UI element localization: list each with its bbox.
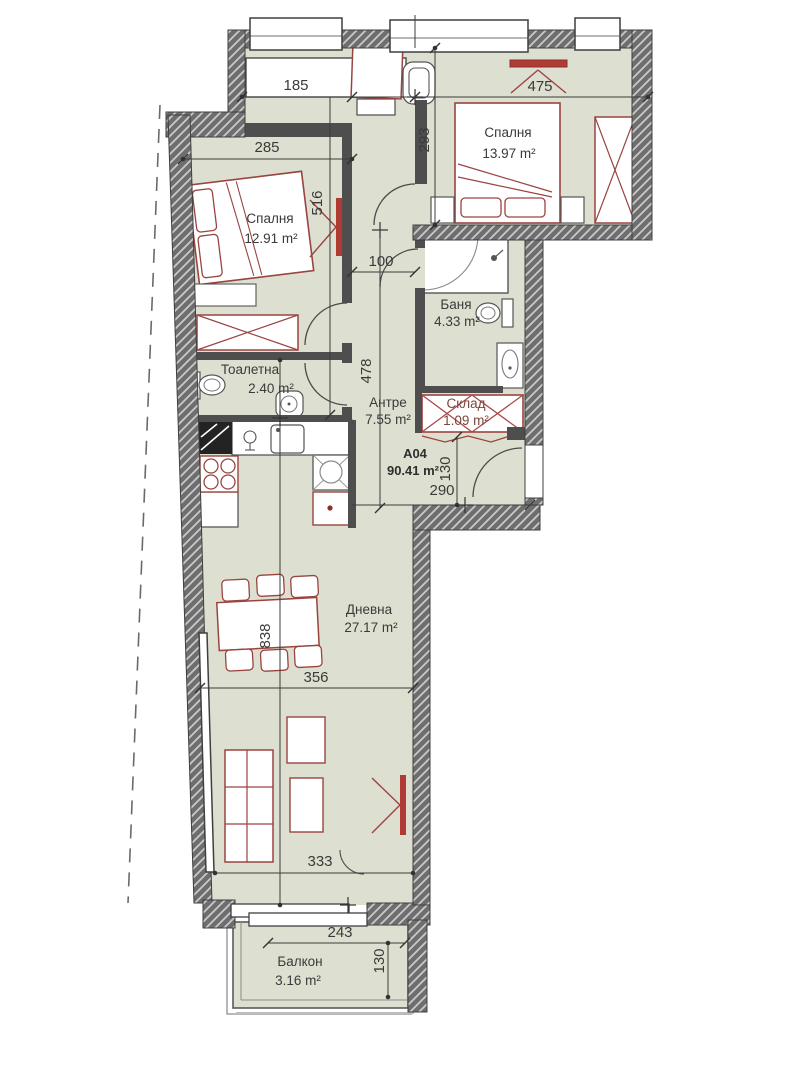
dim-label-130-entry: 130 (437, 456, 454, 481)
balcony-sliding-door (231, 904, 367, 926)
floor-plan-page: 185 475 293 285 516 100 478 130 290 838 … (0, 0, 800, 1078)
dim-label-478: 478 (358, 358, 375, 383)
room-label-bedroom2-area: 13.97 m² (482, 146, 536, 161)
dim-label-185: 185 (283, 77, 308, 94)
bedroom2-nightstand-right (561, 197, 584, 223)
kitchen-stove (200, 456, 238, 492)
unit-code-label: A04 (403, 446, 428, 461)
dining-set (215, 572, 322, 673)
room-label-bedroom1-name: Спалня (246, 211, 293, 226)
kitchen-fridge (198, 422, 232, 454)
dim-label-285: 285 (254, 139, 279, 156)
bedroom2-wardrobe (595, 117, 635, 223)
dim-label-243: 243 (327, 924, 352, 941)
dim-label-293: 293 (416, 127, 433, 152)
bedroom1-bed (187, 171, 313, 284)
bathroom-washbasin (497, 343, 523, 388)
dim-label-100: 100 (368, 253, 393, 270)
coffee-table-2 (290, 778, 323, 832)
room-label-bathroom-area: 4.33 m² (434, 314, 480, 329)
bedroom1-wardrobe (197, 315, 298, 350)
entrance-door-opening (525, 445, 543, 498)
dim-label-356: 356 (303, 669, 328, 686)
room-label-toilet-area: 2.40 m² (248, 381, 294, 396)
room-label-hallway-name: Антре (369, 395, 407, 410)
dim-label-838: 838 (257, 623, 274, 648)
room-label-bedroom2-name: Спалня (484, 125, 531, 140)
room-label-balcony-name: Балкон (277, 954, 322, 969)
bedroom2-bed (455, 103, 560, 223)
sofa (225, 750, 273, 862)
bedroom2-nightstand-left (431, 197, 454, 223)
room-label-balcony-area: 3.16 m² (275, 973, 321, 988)
kitchen-hob-square (313, 492, 350, 525)
unit-area-label: 90.41 m² (387, 463, 440, 478)
room-label-bedroom1-area: 12.91 m² (244, 231, 298, 246)
coffee-table-1 (287, 717, 325, 763)
floor-plan-drawing: 185 475 293 285 516 100 478 130 290 838 … (0, 0, 800, 1078)
room-label-storage-name: Склад (446, 396, 485, 411)
kitchen-sink (271, 425, 304, 453)
nook-chair (403, 62, 435, 104)
room-label-living-name: Дневна (346, 602, 393, 617)
dim-label-290: 290 (429, 482, 454, 499)
room-label-bathroom-name: Баня (440, 297, 471, 312)
room-label-living-area: 27.17 m² (344, 620, 398, 635)
shower-cabin (420, 233, 508, 293)
room-label-toilet-name: Тоалетна (221, 362, 280, 377)
bedroom1-bench (190, 284, 256, 306)
room-label-hallway-area: 7.55 m² (365, 412, 411, 427)
dim-label-333: 333 (307, 853, 332, 870)
dim-label-516: 516 (309, 190, 326, 215)
dim-label-475: 475 (527, 78, 552, 95)
room-label-storage-area: 1.09 m² (443, 413, 489, 428)
dim-label-130-balcony: 130 (371, 948, 388, 973)
